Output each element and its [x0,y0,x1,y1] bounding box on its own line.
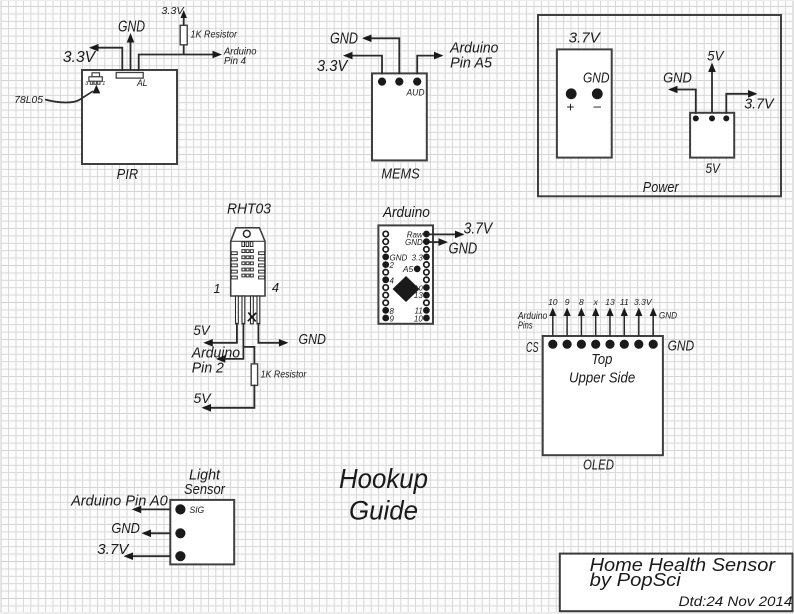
svg-text:5V: 5V [193,390,212,406]
svg-text:3.7V: 3.7V [97,542,129,558]
svg-text:GND: GND [330,30,358,47]
svg-text:GND: GND [663,71,692,87]
svg-text:x: x [593,297,599,307]
svg-text:Top: Top [591,352,612,368]
svg-text:3.7V: 3.7V [464,221,494,238]
svg-text:8: 8 [579,297,584,307]
svg-text:GND: GND [405,238,423,247]
svg-text:10: 10 [414,314,423,323]
svg-text:3.3V: 3.3V [317,58,349,75]
svg-text:Arduino Pin A0: Arduino Pin A0 [70,494,168,510]
svg-text:5V: 5V [193,322,211,338]
svg-text:4: 4 [390,276,395,285]
svg-text:CS: CS [526,340,539,356]
svg-text:2: 2 [389,261,395,270]
svg-text:1K Resistor: 1K Resistor [191,30,238,41]
svg-text:3.3: 3.3 [412,254,424,263]
svg-text:13: 13 [605,297,615,307]
svg-text:Upper Side: Upper Side [569,370,635,386]
svg-text:1: 1 [102,81,105,87]
svg-text:GND: GND [583,71,610,87]
svg-text:5V: 5V [707,47,725,63]
svg-text:OLED: OLED [583,457,614,473]
svg-text:by PopSci: by PopSci [590,570,682,590]
svg-text:9: 9 [565,297,570,307]
svg-text:1K Resistor: 1K Resistor [261,369,307,380]
svg-text:3.3V: 3.3V [161,5,184,17]
svg-text:5V: 5V [705,160,721,176]
svg-text:GND: GND [659,310,677,321]
svg-text:GND: GND [111,521,140,537]
svg-text:GND: GND [299,332,326,348]
svg-text:1: 1 [213,281,220,296]
svg-text:+: + [567,100,575,115]
svg-text:SIG: SIG [190,505,205,516]
svg-text:3.3V: 3.3V [634,297,653,307]
svg-text:Dtd:24 Nov 2014: Dtd:24 Nov 2014 [679,593,793,609]
svg-text:Guide: Guide [349,495,418,525]
svg-text:GND: GND [118,19,145,36]
svg-text:Arduino: Arduino [449,41,498,57]
svg-text:GND: GND [449,241,478,258]
svg-text:10: 10 [548,297,558,307]
svg-text:Arduino: Arduino [191,345,240,361]
svg-text:4: 4 [272,280,279,295]
svg-text:AL: AL [136,78,147,88]
svg-text:Hookup: Hookup [339,463,428,494]
svg-text:A5: A5 [402,264,414,274]
svg-text:3.7V: 3.7V [744,97,775,113]
svg-text:Pin 2: Pin 2 [192,361,224,377]
svg-text:RHT03: RHT03 [227,202,271,218]
svg-text:11: 11 [620,297,629,307]
svg-text:Pin A5: Pin A5 [450,56,493,72]
svg-text:Power: Power [643,180,680,196]
svg-text:PIR: PIR [117,166,139,183]
svg-text:Arduino: Arduino [382,205,430,221]
svg-text:Sensor: Sensor [184,482,226,498]
svg-text:3.3V: 3.3V [63,49,97,66]
svg-text:–: – [594,99,602,114]
svg-text:Pins: Pins [518,320,533,331]
svg-text:MEMS: MEMS [381,167,420,183]
svg-text:9: 9 [390,315,395,324]
svg-text:AUD: AUD [406,88,425,98]
svg-text:GND: GND [668,338,695,355]
svg-text:3.7V: 3.7V [569,31,601,47]
svg-text:Pin 4: Pin 4 [224,55,246,67]
svg-text:78L05: 78L05 [14,94,43,106]
